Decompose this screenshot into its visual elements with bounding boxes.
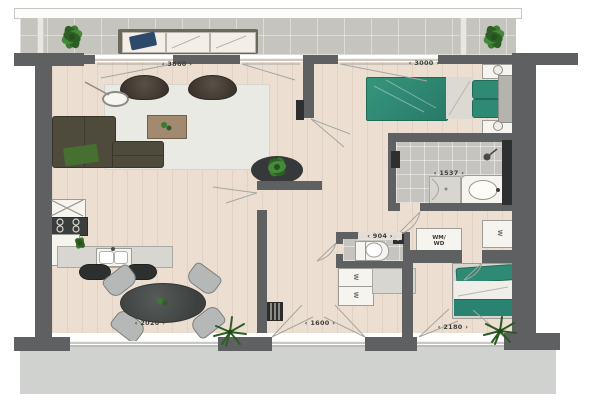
dining-table [120,283,206,323]
exterior-walkway [20,345,556,394]
bedroom2-wall [410,250,462,263]
dimension-label: 2020 [119,319,181,327]
sofa-chaise [112,141,164,168]
window-glazing [417,341,504,344]
window-glazing [70,341,218,344]
wardrobe-marker: W [351,290,359,300]
door-panel [296,100,304,120]
bathroom-wall [388,203,400,211]
sink-basin [99,251,114,264]
bathroom-wall [420,203,512,211]
wc-wall [336,232,343,244]
balcony-floor [20,18,516,55]
bedroom2-wall [482,250,518,263]
bench-cushion [210,32,256,53]
interior-wall [257,210,267,333]
dimension-label: 2180 [424,323,482,331]
exterior-wall-left [35,55,52,345]
exterior-wall-footing [504,333,560,350]
interior-wall [257,181,322,190]
balcony-partition-left [37,18,44,55]
dimension-label: 3000 [392,59,456,67]
interior-wall [303,62,314,118]
bed-mattress [446,77,474,119]
dimension-label: 904 [358,232,402,240]
bathroom-wall [388,133,396,209]
exterior-wall-footing [14,337,70,351]
dimension-label: 1537 [423,169,475,177]
wardrobe-marker: W [495,228,503,238]
window-glazing [272,341,365,344]
shower-tray [429,176,461,205]
bedroom2-wall [402,262,413,345]
wardrobe-marker: W [351,272,359,282]
radiator [267,302,283,321]
bed-pillow [472,99,501,118]
bed-duvet [366,77,448,121]
kitchen-tall-cabinet [50,199,86,219]
dimension-label: 3860 [142,60,212,68]
balcony-partition-right [460,18,467,55]
floor-plan: WM/ WD [0,0,600,400]
plant-pot [251,156,303,184]
washer-dryer-label: WM/ WD [432,235,446,248]
bench-cushion [166,32,210,53]
coffee-table [147,115,187,139]
bathroom-towel-rail [391,151,400,168]
bed2-blanket [454,299,514,316]
sink-basin [114,251,128,264]
dimension-label: 1600 [291,319,349,327]
bed-pillow [472,80,501,99]
window-glazing [240,58,303,61]
bathroom-wall [388,133,512,142]
shower-tiled-wall [502,140,512,205]
wc-wall [336,261,410,268]
exterior-wall-footing [218,337,272,351]
floor-lamp [102,91,129,107]
toilet-bowl [365,241,389,261]
exterior-wall-right [512,55,536,347]
armchair [188,75,237,100]
bed2-sheet [454,281,514,300]
